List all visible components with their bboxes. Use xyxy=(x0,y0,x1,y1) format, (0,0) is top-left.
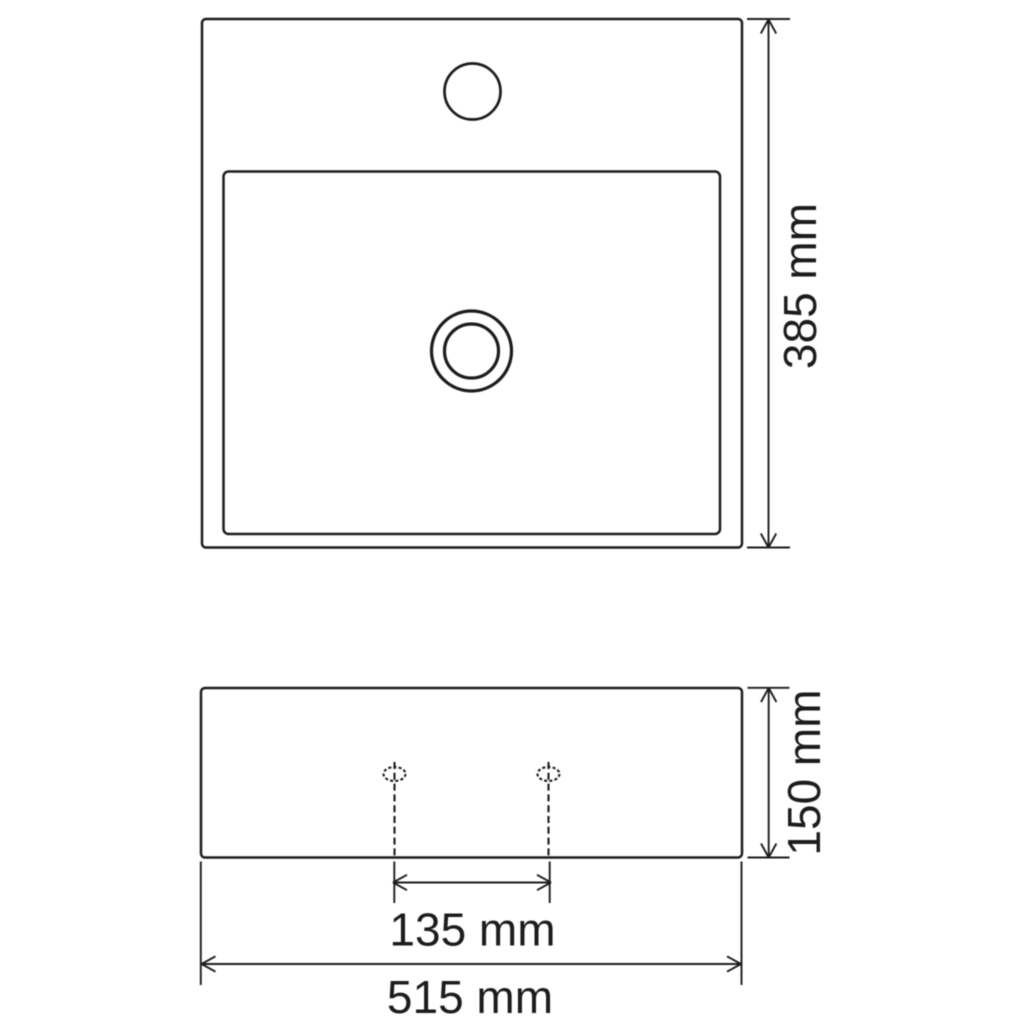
svg-text:385 mm: 385 mm xyxy=(774,203,826,369)
svg-text:515 mm: 515 mm xyxy=(387,971,553,1023)
svg-text:150 mm: 150 mm xyxy=(778,689,830,855)
svg-text:135 mm: 135 mm xyxy=(389,904,555,956)
